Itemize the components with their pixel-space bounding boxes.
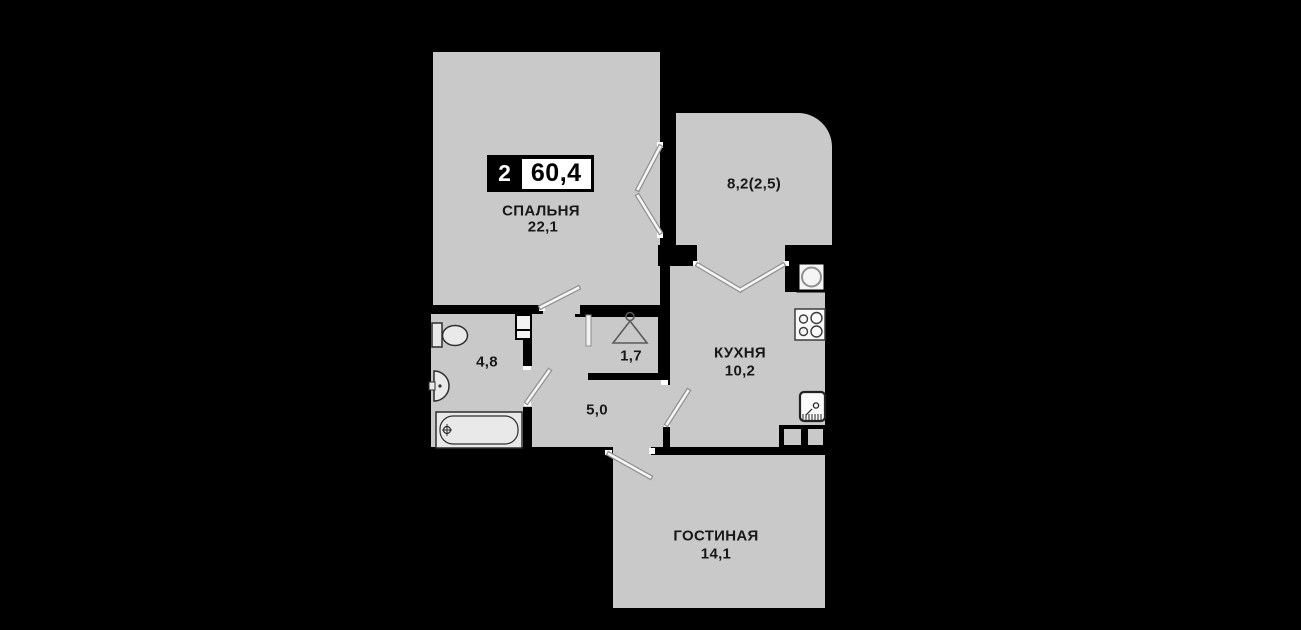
wall-wardrobe-right xyxy=(658,314,668,380)
label-loggia-area: 8,2(2,5) xyxy=(727,176,781,193)
door-hinge xyxy=(657,142,663,148)
floor-plan: 2 60,4 СПАЛЬНЯ 22,1 8,2(2,5) КУХНЯ 10,2 … xyxy=(0,0,1301,630)
rooms-count: 2 xyxy=(487,155,522,192)
wall-kitchen-top-right xyxy=(785,245,830,292)
label-hallway-area: 5,0 xyxy=(586,402,608,419)
door-hinge xyxy=(693,261,699,266)
vent-shaft-icon xyxy=(515,329,532,340)
label-bathroom-area: 4,8 xyxy=(476,354,498,371)
wall-wardrobe-top xyxy=(575,314,668,317)
doorway-bedroom xyxy=(543,305,580,314)
wall-wardrobe-bottom xyxy=(588,373,665,380)
door-hinge xyxy=(649,448,655,454)
door-hinge xyxy=(524,401,531,406)
door-hinge xyxy=(657,232,663,238)
wall-kitchen-top-left xyxy=(658,245,697,266)
wall-bath-right-bottom xyxy=(523,407,532,447)
door-hinge xyxy=(523,366,531,370)
door-hinge xyxy=(783,261,789,266)
label-bedroom-area: 22,1 xyxy=(528,219,558,236)
door-hinge xyxy=(661,380,668,385)
doorway-kitchen xyxy=(663,385,672,427)
label-living-area: 14,1 xyxy=(701,546,731,563)
label-bedroom-name: СПАЛЬНЯ xyxy=(502,203,580,220)
apartment-badge: 2 60,4 xyxy=(487,155,594,192)
label-kitchen-area: 10,2 xyxy=(725,363,755,380)
doorway-living xyxy=(613,447,651,455)
label-kitchen-name: КУХНЯ xyxy=(714,345,766,362)
label-living-name: ГОСТИНАЯ xyxy=(673,528,758,545)
label-wardrobe-area: 1,7 xyxy=(620,348,642,365)
total-area-value: 60,4 xyxy=(522,159,591,189)
room-bath-hall-band xyxy=(431,314,663,447)
door-hinge xyxy=(664,423,670,427)
door-hinge xyxy=(539,306,545,311)
door-hinge xyxy=(605,450,612,455)
